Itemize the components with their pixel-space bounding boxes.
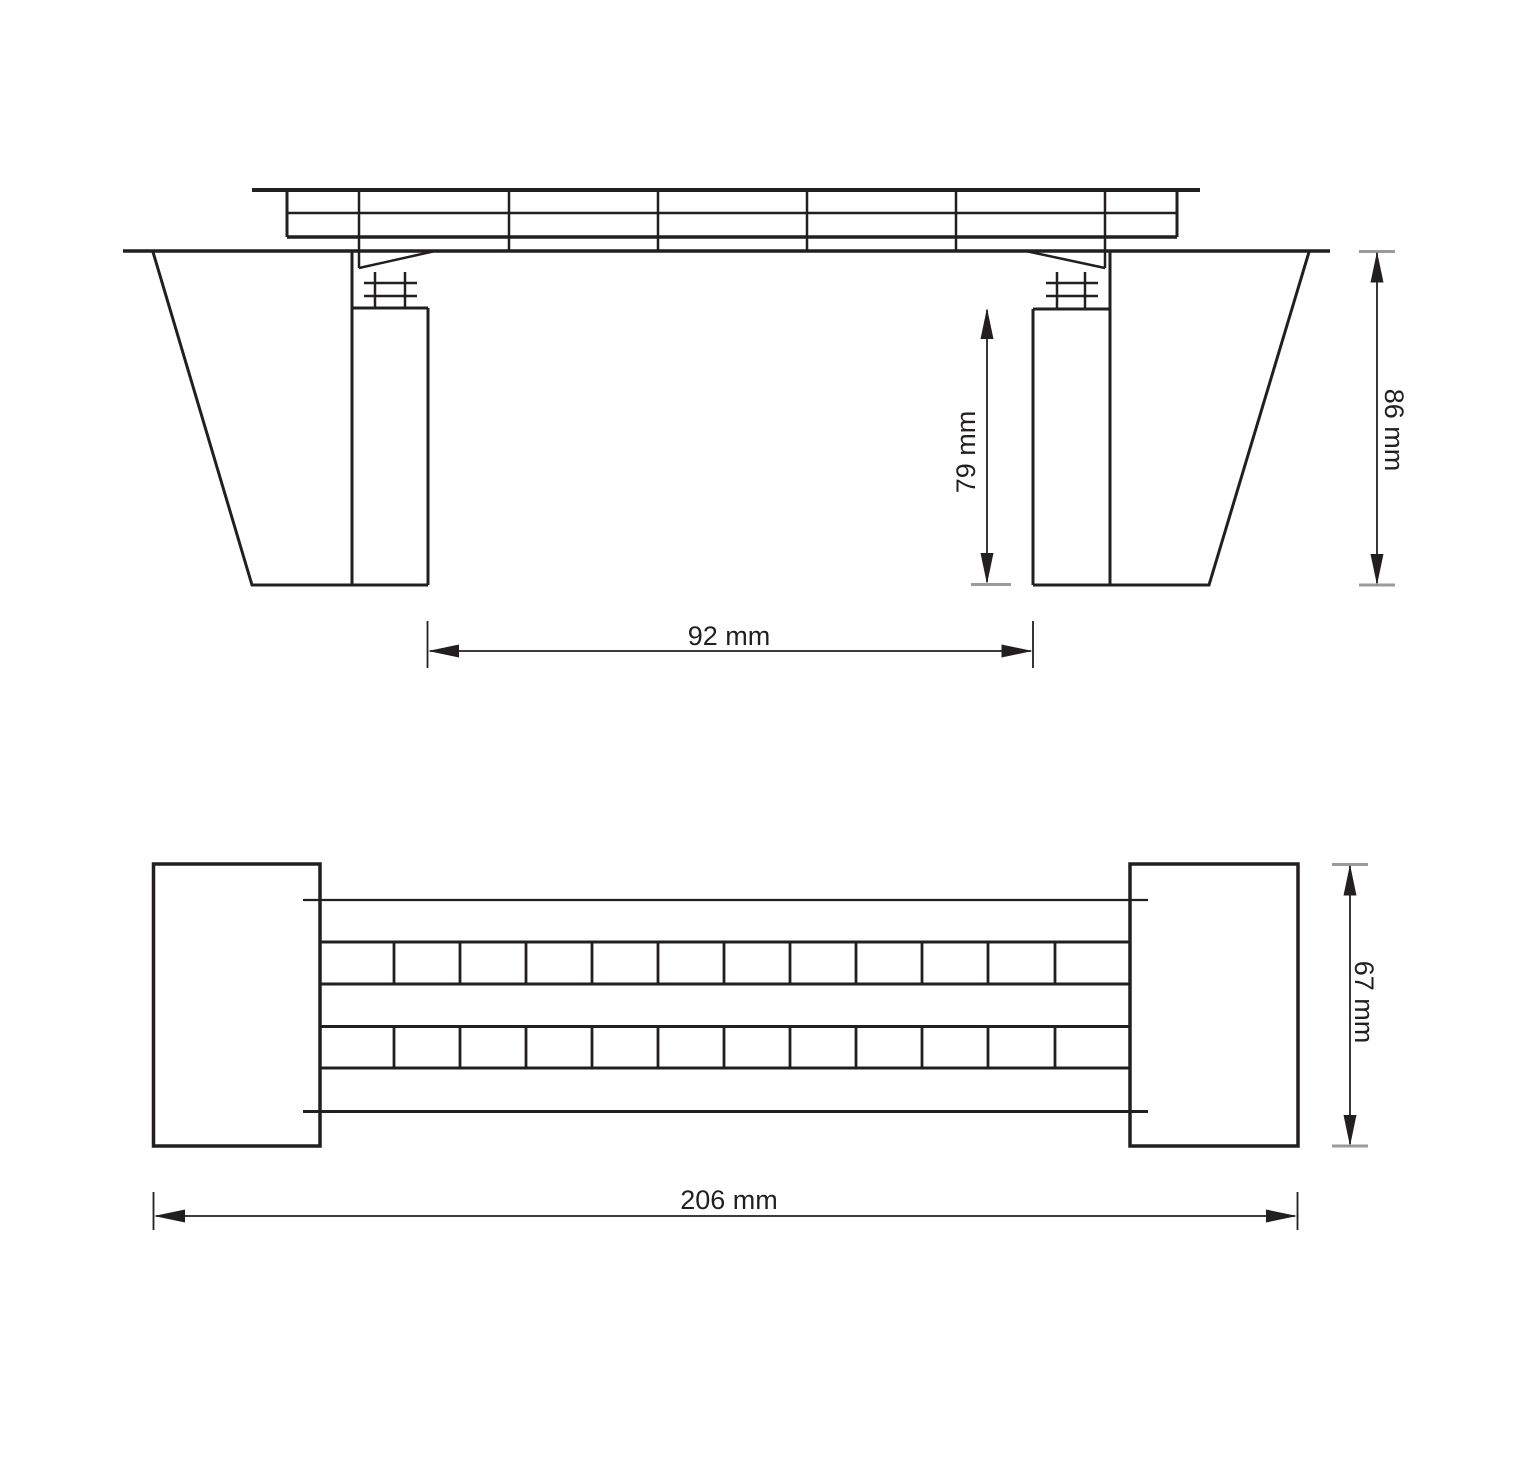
technical-drawing-page: 92 mm 79 mm 86 mm <box>0 0 1538 1458</box>
dimension-span-92mm: 92 mm <box>428 621 1034 668</box>
plan-deck-edges <box>303 900 1148 1112</box>
plan-panel-dividers-lower <box>394 1027 1055 1069</box>
arrowhead-down <box>1371 554 1384 585</box>
left-abutment <box>153 251 352 585</box>
dimension-width-67mm: 67 mm <box>1332 865 1379 1147</box>
dimension-label-span: 92 mm <box>688 621 771 651</box>
arrowhead-up <box>981 308 994 339</box>
dimension-pier-height-79mm: 79 mm <box>951 308 1011 585</box>
arrowhead-down <box>981 553 994 584</box>
bridge-drawing: 92 mm 79 mm 86 mm <box>0 0 1538 1458</box>
dimension-label-pier-height: 79 mm <box>951 411 981 494</box>
plan-panel-dividers-upper <box>394 942 1055 984</box>
railing-posts <box>359 190 1105 268</box>
arrowhead-left <box>428 645 459 658</box>
right-pier <box>1033 251 1110 585</box>
side-elevation-view: 92 mm 79 mm 86 mm <box>123 190 1409 668</box>
plan-right-abutment <box>1130 864 1298 1146</box>
dimension-label-width: 67 mm <box>1349 961 1379 1044</box>
arrowhead-right <box>1002 645 1033 658</box>
left-pier <box>352 308 428 585</box>
arrowhead-right <box>1266 1210 1297 1223</box>
right-bearing <box>1028 252 1105 309</box>
right-abutment <box>1110 252 1309 585</box>
right-abutment-outline <box>1110 252 1309 585</box>
dimension-total-height-86mm: 86 mm <box>1359 252 1409 586</box>
arrowhead-up <box>1344 865 1357 896</box>
dimension-length-206mm: 206 mm <box>154 1185 1298 1230</box>
arrowhead-up <box>1371 252 1384 283</box>
railing-girder <box>123 190 1330 268</box>
arrowhead-down <box>1344 1115 1357 1146</box>
right-bearing-brace <box>1028 252 1105 269</box>
plan-left-abutment <box>154 864 321 1146</box>
dimension-label-total-height: 86 mm <box>1379 389 1409 472</box>
arrowhead-left <box>154 1210 185 1223</box>
dimension-label-length: 206 mm <box>680 1185 778 1215</box>
left-abutment-outline <box>153 252 352 585</box>
left-bearing <box>359 252 433 309</box>
left-bearing-brace <box>359 252 433 269</box>
plan-view: 67 mm 206 mm <box>154 864 1380 1230</box>
